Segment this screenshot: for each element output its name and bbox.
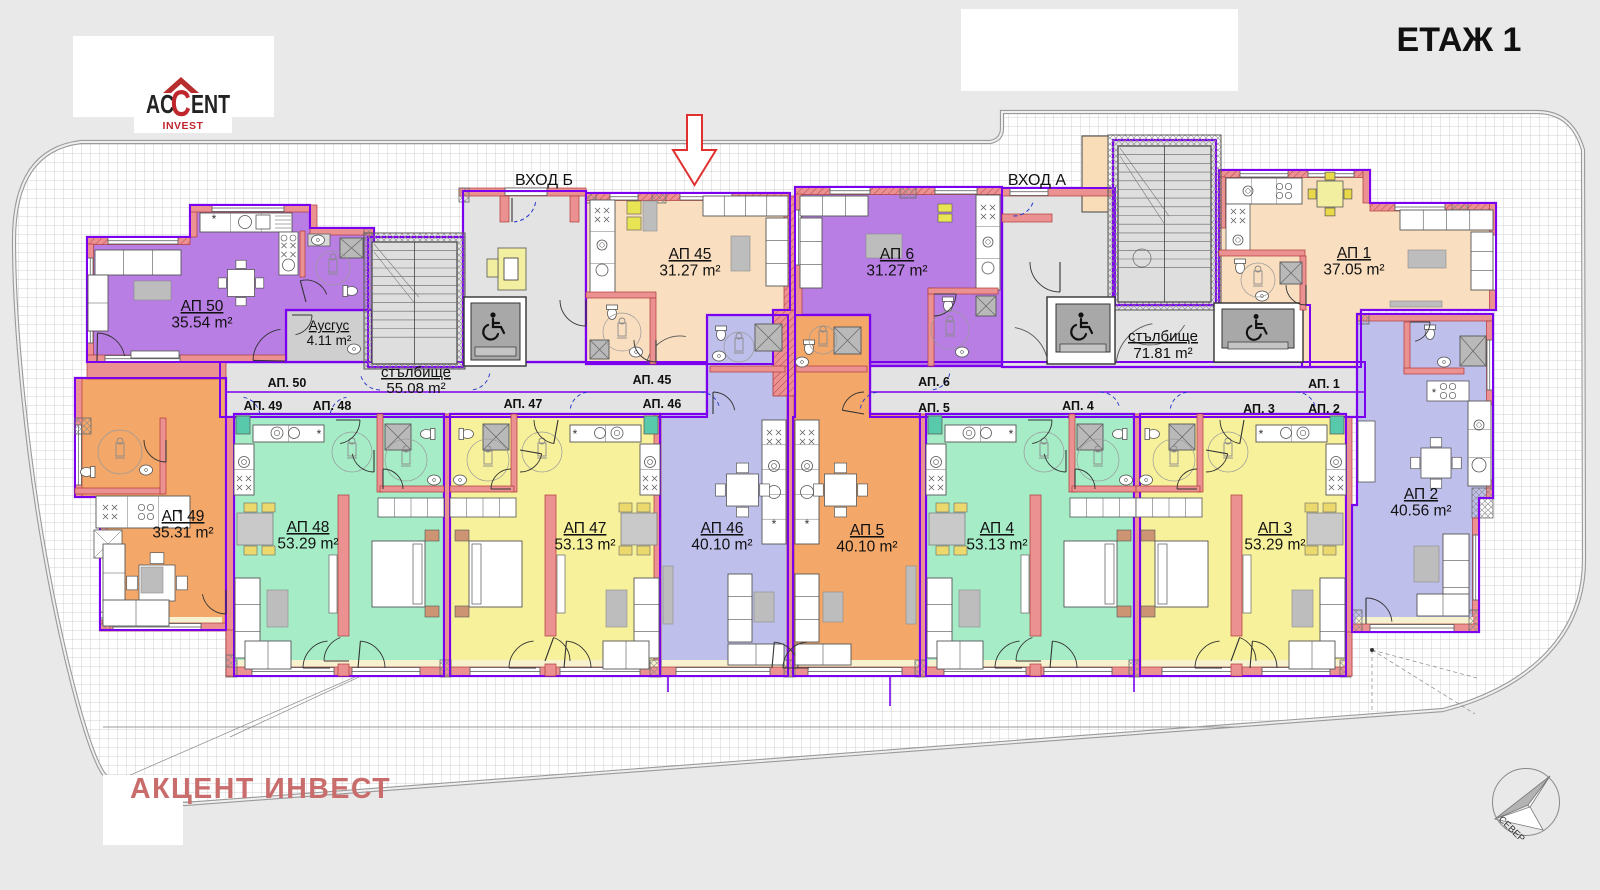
svg-text:AC: AC — [146, 89, 174, 118]
svg-text:37.05 m²: 37.05 m² — [1323, 262, 1384, 279]
svg-text:АП. 4: АП. 4 — [1062, 399, 1094, 413]
svg-text:ВХОД А: ВХОД А — [1008, 172, 1066, 189]
svg-text:АП 4: АП 4 — [980, 520, 1015, 537]
svg-text:АП 6: АП 6 — [880, 246, 914, 263]
svg-text:35.54 m²: 35.54 m² — [171, 315, 232, 332]
svg-text:35.31 m²: 35.31 m² — [152, 525, 213, 542]
svg-text:АП 5: АП 5 — [850, 522, 884, 539]
svg-text:53.29 m²: 53.29 m² — [1244, 537, 1305, 554]
svg-text:АП 47: АП 47 — [564, 520, 607, 537]
svg-text:INVEST: INVEST — [163, 120, 204, 132]
svg-text:40.10 m²: 40.10 m² — [691, 537, 752, 554]
svg-text:АП 45: АП 45 — [669, 246, 712, 263]
svg-text:31.27 m²: 31.27 m² — [659, 263, 720, 280]
svg-text:ENT: ENT — [191, 89, 230, 118]
svg-text:53.29 m²: 53.29 m² — [277, 536, 338, 553]
svg-text:АП 1: АП 1 — [1337, 245, 1371, 262]
svg-text:*: * — [1259, 427, 1264, 441]
svg-text:*: * — [1432, 387, 1437, 399]
svg-text:ЕТАЖ 1: ЕТАЖ 1 — [1397, 21, 1522, 59]
svg-text:АП. 49: АП. 49 — [244, 399, 283, 413]
svg-text:ВХОД Б: ВХОД Б — [515, 172, 573, 189]
svg-text:71.81 m²: 71.81 m² — [1133, 345, 1192, 362]
svg-text:4.11 m²: 4.11 m² — [307, 333, 352, 348]
svg-text:*: * — [772, 517, 777, 531]
svg-text:АП. 6: АП. 6 — [918, 375, 950, 389]
svg-text:55.08 m²: 55.08 m² — [386, 380, 445, 397]
svg-text:АП 46: АП 46 — [701, 520, 744, 537]
svg-text:Аусгус: Аусгус — [309, 318, 350, 333]
svg-text:АП. 45: АП. 45 — [633, 373, 672, 387]
svg-text:C: C — [171, 82, 191, 124]
svg-text:53.13 m²: 53.13 m² — [966, 537, 1027, 554]
svg-text:*: * — [573, 427, 578, 441]
svg-text:*: * — [317, 427, 322, 441]
svg-text:40.10 m²: 40.10 m² — [836, 539, 897, 556]
svg-text:АКЦЕНТ ИНВЕСТ: АКЦЕНТ ИНВЕСТ — [130, 773, 391, 805]
svg-text:АП. 1: АП. 1 — [1308, 377, 1340, 391]
svg-text:31.27 m²: 31.27 m² — [866, 263, 927, 280]
svg-text:40.56 m²: 40.56 m² — [1390, 503, 1451, 520]
svg-text:*: * — [1009, 427, 1014, 441]
svg-text:АП. 46: АП. 46 — [643, 397, 682, 411]
svg-text:АП 48: АП 48 — [287, 519, 330, 536]
svg-text:АП 50: АП 50 — [181, 298, 224, 315]
svg-text:АП 49: АП 49 — [162, 508, 205, 525]
svg-text:АП. 48: АП. 48 — [313, 399, 352, 413]
svg-text:*: * — [212, 212, 217, 226]
svg-text:АП. 5: АП. 5 — [918, 401, 950, 415]
svg-text:АП. 50: АП. 50 — [268, 376, 307, 390]
svg-text:53.13 m²: 53.13 m² — [554, 537, 615, 554]
svg-text:АП 3: АП 3 — [1258, 520, 1292, 537]
svg-text:стълбище: стълбище — [381, 364, 451, 381]
svg-text:АП. 47: АП. 47 — [504, 397, 543, 411]
svg-text:АП 2: АП 2 — [1404, 486, 1438, 503]
svg-text:АП. 2: АП. 2 — [1308, 402, 1340, 416]
svg-text:АП. 3: АП. 3 — [1243, 402, 1275, 416]
svg-text:стълбище: стълбище — [1128, 328, 1198, 345]
svg-text:*: * — [805, 517, 810, 531]
